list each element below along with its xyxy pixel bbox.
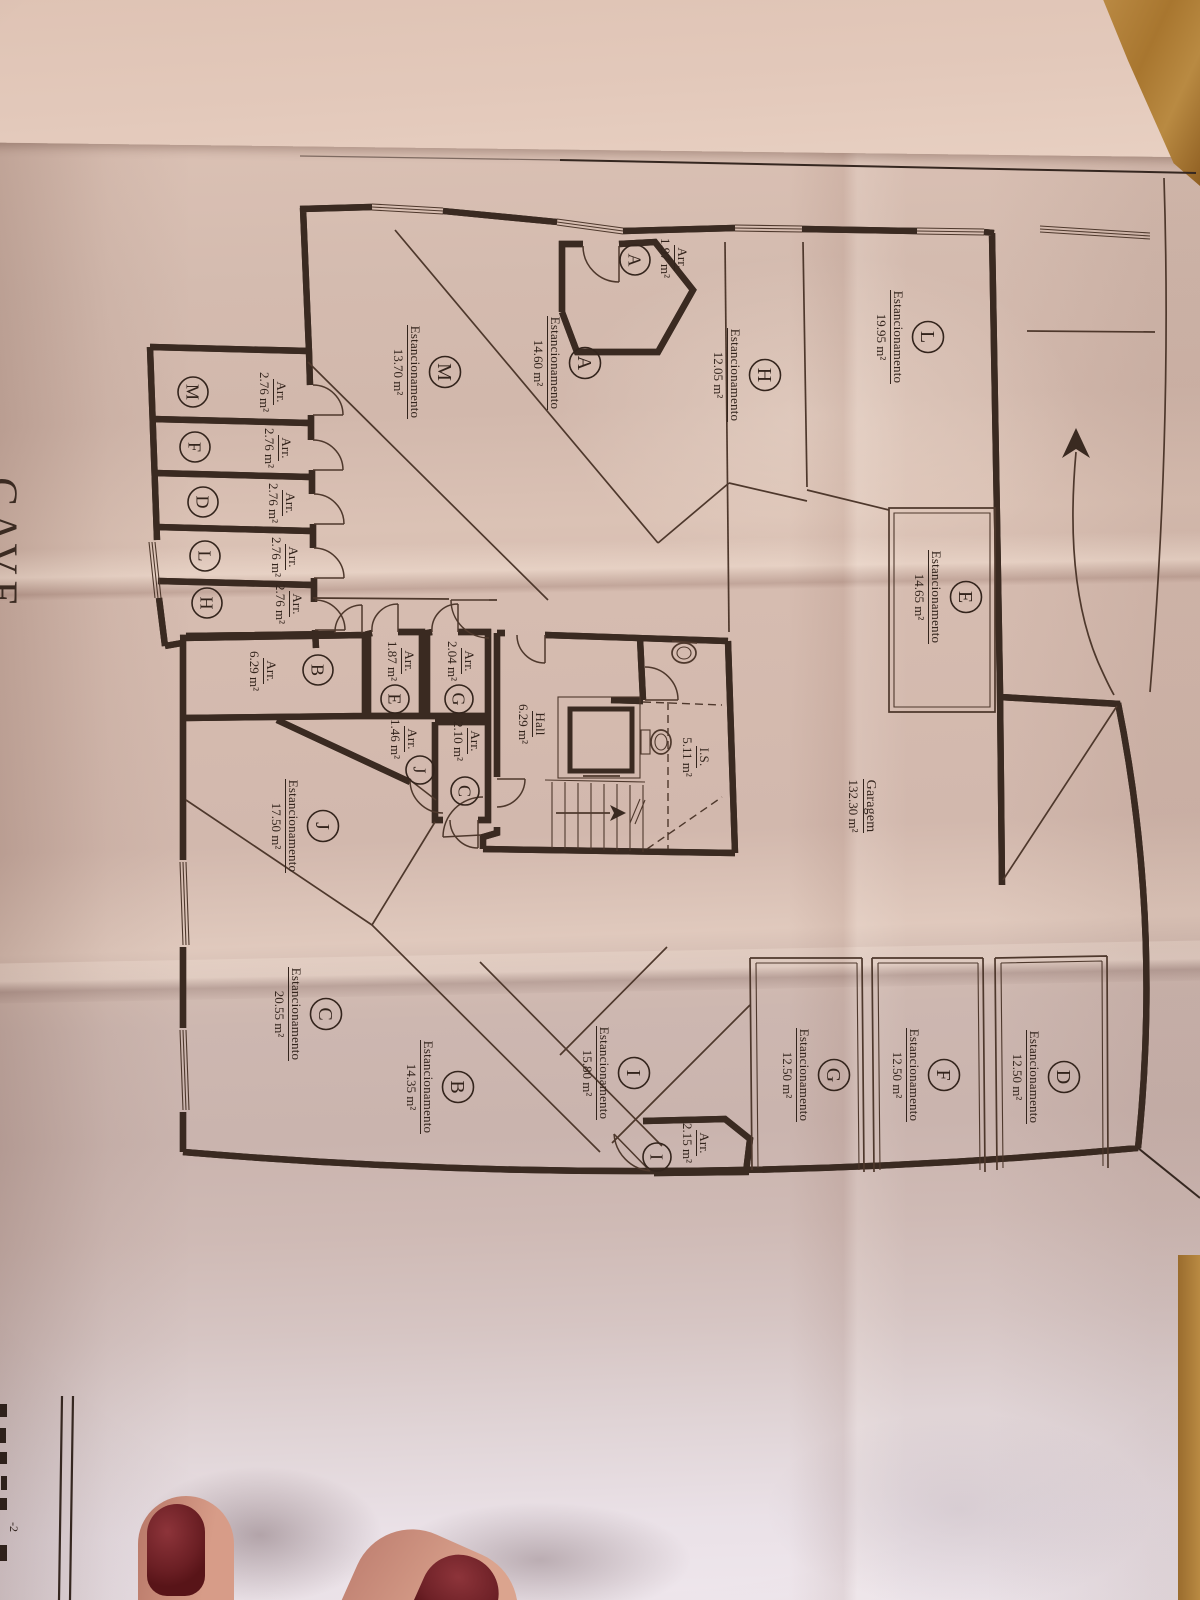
- room-area: 2.15 m²: [680, 1123, 695, 1163]
- stairs: [545, 780, 645, 852]
- wood-table-right-edge: [1178, 1255, 1200, 1600]
- storage-label-I: I Arr. 2.15 m²: [643, 1123, 712, 1171]
- room-area: 2.04 m²: [445, 641, 460, 681]
- space-area: 14.65 m²: [912, 574, 927, 621]
- space-area: 20.55 m²: [272, 991, 287, 1038]
- thumb-nail: [147, 1504, 205, 1596]
- space-type: Estancionamento: [728, 329, 743, 422]
- space-type: Estancionamento: [289, 968, 304, 1061]
- room-letter: H: [197, 597, 217, 610]
- space-area: 12.50 m²: [1010, 1054, 1025, 1101]
- room-area: 2.76 m²: [269, 537, 284, 577]
- room-letter: G: [449, 693, 469, 706]
- room-area: 2.76 m²: [257, 372, 272, 412]
- space-type: Estancionamento: [1027, 1031, 1042, 1124]
- floorplan-svg: L Estancionamento 19.95 m² H Estancionam…: [0, 0, 1200, 1600]
- room-letter: F: [185, 442, 205, 452]
- space-type: Estancionamento: [797, 1029, 812, 1122]
- hall-label: Hall 6.29 m²: [516, 704, 548, 744]
- photo-of-floorplan: L Estancionamento 19.95 m² H Estancionam…: [0, 0, 1200, 1600]
- room-area: 2.76 m²: [262, 428, 277, 468]
- space-letter: B: [446, 1080, 468, 1093]
- room-type: Arr.: [286, 546, 301, 567]
- room-letter: L: [195, 551, 215, 562]
- parking-label-L: L Estancionamento 19.95 m²: [874, 290, 944, 384]
- room-area: 5.11 m²: [680, 737, 695, 777]
- storage-label-G: G Arr. 2.04 m²: [445, 641, 477, 713]
- room-type: Arr.: [274, 381, 289, 402]
- space-letter: I: [622, 1070, 644, 1077]
- room-letter: A: [625, 254, 645, 267]
- space-type: Estancionamento: [597, 1027, 612, 1120]
- room-letter: C: [455, 785, 475, 797]
- wc-label: I.S. 5.11 m²: [680, 737, 712, 777]
- room-area: 6.29 m²: [516, 704, 531, 744]
- room-type: Arr.: [283, 492, 298, 513]
- floor-title: CAVE: [0, 477, 25, 613]
- storage-label-M: M Arr. 2.76 m²: [178, 372, 289, 412]
- storage-label-E: E Arr. 1.87 m²: [381, 641, 417, 713]
- space-letter: E: [954, 591, 976, 603]
- room-area: 1.87 m²: [385, 641, 400, 681]
- space-type: Estancionamento: [408, 326, 423, 419]
- space-letter: M: [433, 363, 455, 381]
- space-letter: C: [314, 1007, 336, 1020]
- parking-label-F: F Estancionamento 12.50 m²: [890, 1028, 960, 1122]
- space-area: 15.80 m²: [580, 1050, 595, 1097]
- room-letter: M: [183, 384, 203, 400]
- storage-label-B: B Arr. 6.29 m²: [247, 651, 333, 691]
- elevator: [558, 697, 640, 778]
- space-area: 14.60 m²: [531, 340, 546, 387]
- space-area: 19.95 m²: [874, 314, 889, 361]
- space-letter: D: [1052, 1070, 1074, 1084]
- sink-icon: [672, 641, 697, 663]
- parking-label-G: G Estancionamento 12.50 m²: [780, 1028, 850, 1122]
- space-area: 12.50 m²: [890, 1052, 905, 1099]
- room-name: Garagem: [863, 780, 878, 833]
- space-type: Estancionamento: [907, 1029, 922, 1122]
- room-letter: E: [385, 694, 405, 705]
- room-type: Arr.: [290, 593, 305, 614]
- room-type: Arr.: [675, 247, 690, 268]
- room-letter: J: [410, 766, 430, 773]
- room-area: 132.30 m²: [846, 779, 861, 832]
- space-letter: A: [573, 356, 595, 371]
- ramp-arrow-icon: [1062, 428, 1114, 695]
- space-area: 12.50 m²: [780, 1052, 795, 1099]
- space-area: 12.05 m²: [711, 352, 726, 399]
- storage-label-D: D Arr. 2.76 m²: [188, 483, 298, 523]
- space-type: Estancionamento: [548, 317, 563, 410]
- room-area: 2.76 m²: [266, 483, 281, 523]
- room-name: Hall: [533, 712, 548, 735]
- space-type: Estancionamento: [421, 1041, 436, 1134]
- room-area: 1.97 m²: [658, 238, 673, 278]
- space-type: Estancionamento: [286, 780, 301, 873]
- room-type: Arr.: [462, 650, 477, 671]
- space-type: Estancionamento: [929, 551, 944, 644]
- room-area: 2.10 m²: [451, 721, 466, 761]
- parking-label-M: M Estancionamento 13.70 m²: [391, 325, 461, 419]
- space-area: 14.35 m²: [404, 1064, 419, 1111]
- floor-title-text: CAVE: [0, 477, 25, 613]
- room-type: Arr.: [405, 728, 420, 749]
- room-type: Arr.: [468, 730, 483, 751]
- room-letter: I: [647, 1154, 667, 1160]
- parking-dividers: [186, 178, 1166, 1172]
- stair-direction-arrow-icon: [556, 799, 645, 824]
- parking-label-B: B Estancionamento 14.35 m²: [404, 1040, 474, 1134]
- space-letter: G: [822, 1068, 844, 1082]
- space-letter: F: [932, 1069, 954, 1080]
- room-area: 6.29 m²: [247, 651, 262, 691]
- storage-label-H: H Arr. 2.76 m²: [192, 584, 305, 624]
- space-area: 13.70 m²: [391, 349, 406, 396]
- garage-label: Garagem 132.30 m²: [846, 779, 878, 833]
- space-letter: J: [311, 822, 333, 830]
- parking-label-I: I Estancionamento 15.80 m²: [580, 1026, 650, 1120]
- room-name: I.S.: [697, 748, 712, 767]
- toilet-icon: [641, 730, 671, 754]
- parking-label-C: C Estancionamento 20.55 m²: [272, 967, 342, 1061]
- room-type: Arr.: [697, 1132, 712, 1153]
- room-type: Arr.: [402, 650, 417, 671]
- sheet-border: [59, 156, 1200, 1600]
- parking-label-J: J Estancionamento 17.50 m²: [269, 779, 339, 873]
- parking-label-H: H Estancionamento 12.05 m²: [711, 328, 781, 422]
- storage-label-F: F Arr. 2.76 m²: [180, 428, 294, 468]
- room-area: 1.46 m²: [388, 719, 403, 759]
- room-letter: B: [308, 664, 328, 676]
- thumb-finger: [138, 1496, 234, 1600]
- storage-label-L: L Arr. 2.76 m²: [190, 537, 301, 577]
- space-letter: H: [753, 368, 775, 382]
- parking-label-E: E Estancionamento 14.65 m²: [912, 550, 982, 644]
- parking-label-D: D Estancionamento 12.50 m²: [1010, 1030, 1080, 1124]
- space-letter: L: [916, 331, 938, 343]
- room-type: Arr.: [264, 660, 279, 681]
- room-letter: D: [193, 496, 213, 509]
- storage-label-C: C Arr. 2.10 m²: [451, 721, 483, 805]
- space-type: Estancionamento: [891, 291, 906, 384]
- space-area: 17.50 m²: [269, 803, 284, 850]
- room-type: Arr.: [279, 437, 294, 458]
- sheet-number-fragment: -2: [7, 1522, 21, 1532]
- title-block-edge: -2: [0, 1404, 21, 1561]
- room-area: 2.76 m²: [273, 584, 288, 624]
